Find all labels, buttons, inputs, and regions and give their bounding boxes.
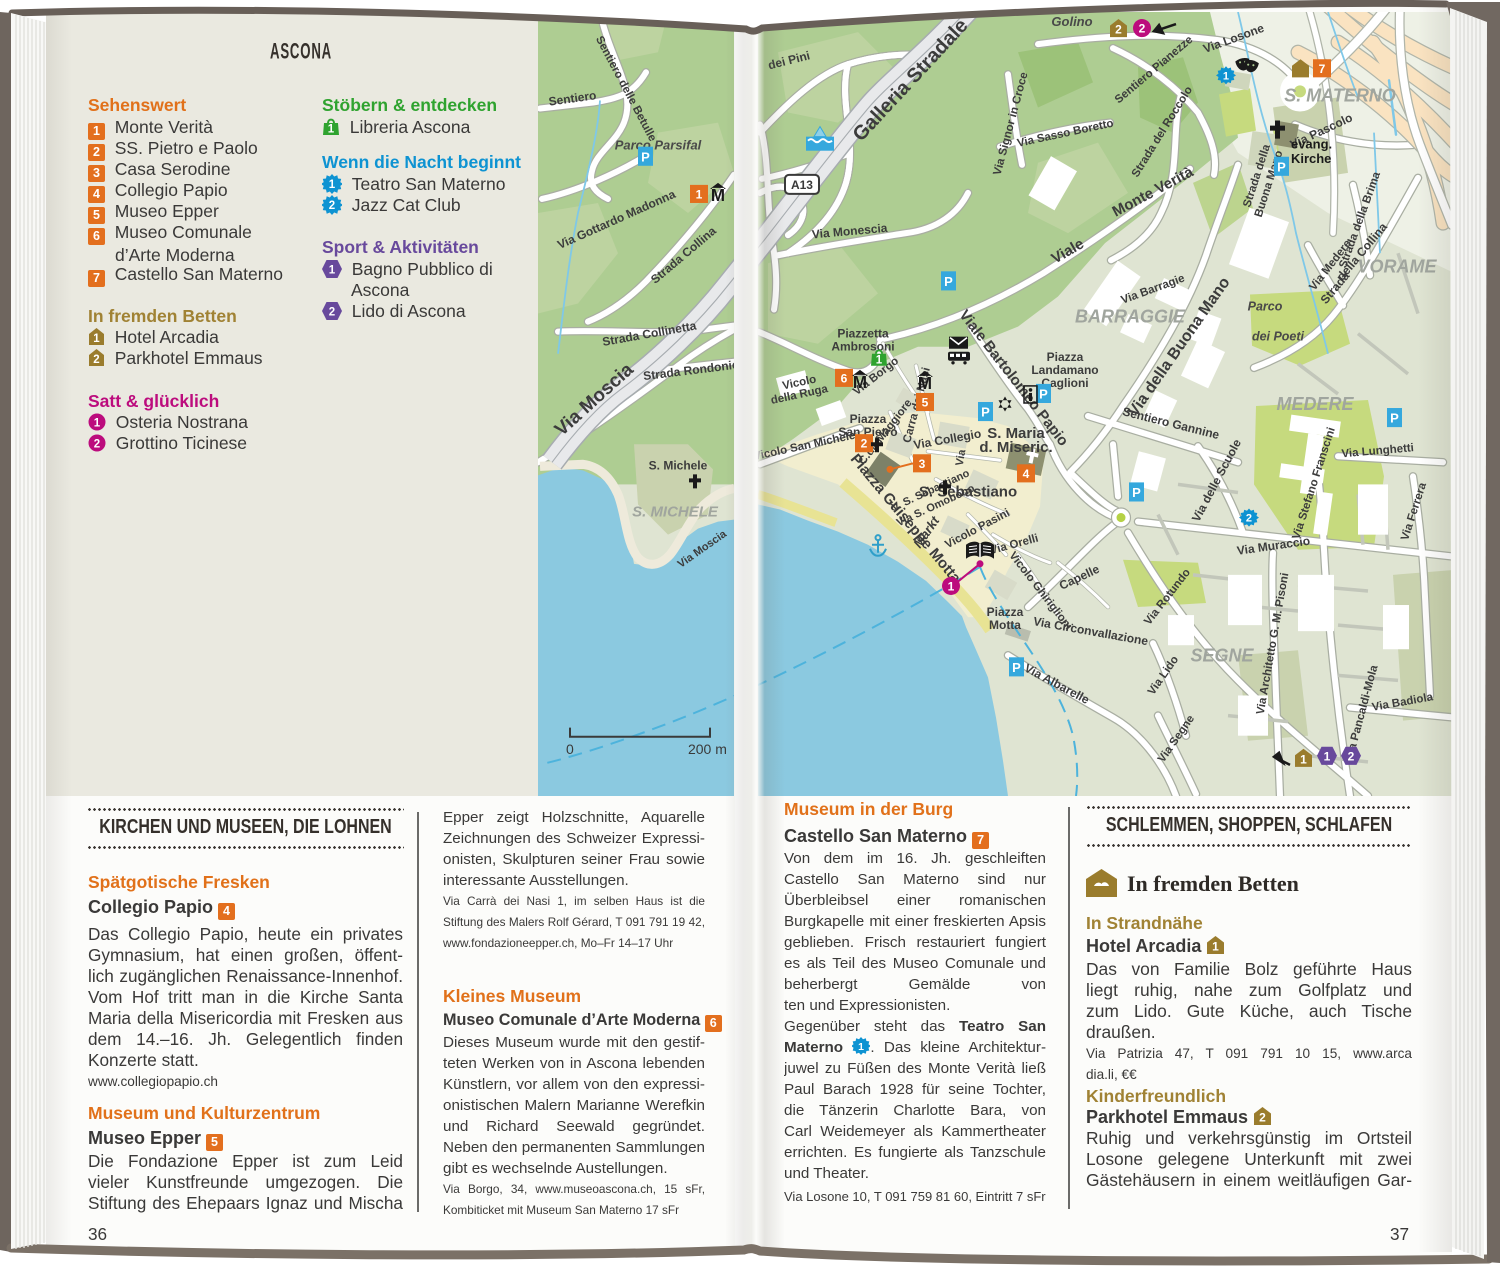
svg-text:1: 1 [1223,70,1229,82]
svg-text:S. MATERNO: S. MATERNO [1284,85,1396,105]
svg-text:Motta: Motta [989,618,1021,632]
svg-text:7: 7 [1319,62,1326,76]
svg-text:1: 1 [696,187,703,201]
svg-text:MEDERE: MEDERE [1277,394,1355,414]
svg-text:evang.: evang. [1291,137,1332,152]
svg-text:dei Poeti: dei Poeti [1252,330,1305,344]
svg-text:P: P [1132,485,1141,500]
svg-text:2: 2 [329,307,335,319]
svg-text:2: 2 [94,439,100,451]
svg-text:S. Michele: S. Michele [649,458,708,472]
svg-text:2: 2 [1259,1111,1266,1125]
svg-text:d. Miseric.: d. Miseric. [979,439,1052,456]
svg-text:1: 1 [94,418,101,430]
svg-text:Piazza: Piazza [987,605,1024,619]
svg-text:4: 4 [1023,467,1030,481]
svg-text:Parco: Parco [1248,299,1283,313]
svg-text:1: 1 [328,124,335,136]
svg-text:P: P [944,274,953,289]
svg-text:M: M [918,374,932,393]
svg-text:0: 0 [566,741,574,757]
svg-text:2: 2 [1139,22,1146,36]
svg-text:2: 2 [1115,23,1122,37]
svg-text:3: 3 [919,457,926,471]
svg-text:1: 1 [858,1041,864,1053]
svg-text:1: 1 [93,333,100,345]
svg-text:Ambrosoni: Ambrosoni [831,340,894,354]
svg-text:S. MICHELE: S. MICHELE [632,504,719,521]
svg-text:P: P [1390,411,1399,426]
svg-text:2: 2 [1246,513,1252,525]
svg-text:1: 1 [948,579,955,593]
svg-text:1: 1 [1300,752,1307,766]
svg-text:1: 1 [1324,749,1331,763]
svg-text:P: P [981,405,990,420]
svg-text:Parco Parsifal: Parco Parsifal [615,138,702,153]
svg-text:Landamano: Landamano [1031,363,1098,377]
svg-text:Golino: Golino [1051,14,1092,29]
svg-text:M: M [711,186,725,205]
svg-text:2: 2 [93,354,99,366]
svg-text:2: 2 [861,437,868,451]
svg-text:5: 5 [922,395,929,409]
svg-text:Piazza: Piazza [1047,350,1084,364]
svg-text:P: P [1039,386,1048,401]
svg-text:A13: A13 [791,178,813,192]
svg-text:Piazzetta: Piazzetta [837,327,889,341]
svg-text:P: P [1012,660,1021,675]
svg-text:2: 2 [1348,749,1355,763]
svg-text:1: 1 [876,354,883,366]
svg-text:1: 1 [1213,940,1220,954]
svg-text:P: P [641,149,650,164]
svg-text:BARRAGGIE: BARRAGGIE [1075,307,1186,327]
svg-text:SEGNE: SEGNE [1191,645,1255,665]
svg-text:1: 1 [329,179,336,191]
svg-text:Piazza: Piazza [850,412,887,426]
svg-text:1: 1 [329,265,336,277]
svg-text:M: M [853,373,867,392]
svg-text:Kirche: Kirche [1291,151,1331,166]
svg-text:200 m: 200 m [688,741,727,757]
svg-text:2: 2 [329,200,335,212]
svg-text:P: P [1277,159,1286,174]
svg-text:6: 6 [841,371,848,385]
